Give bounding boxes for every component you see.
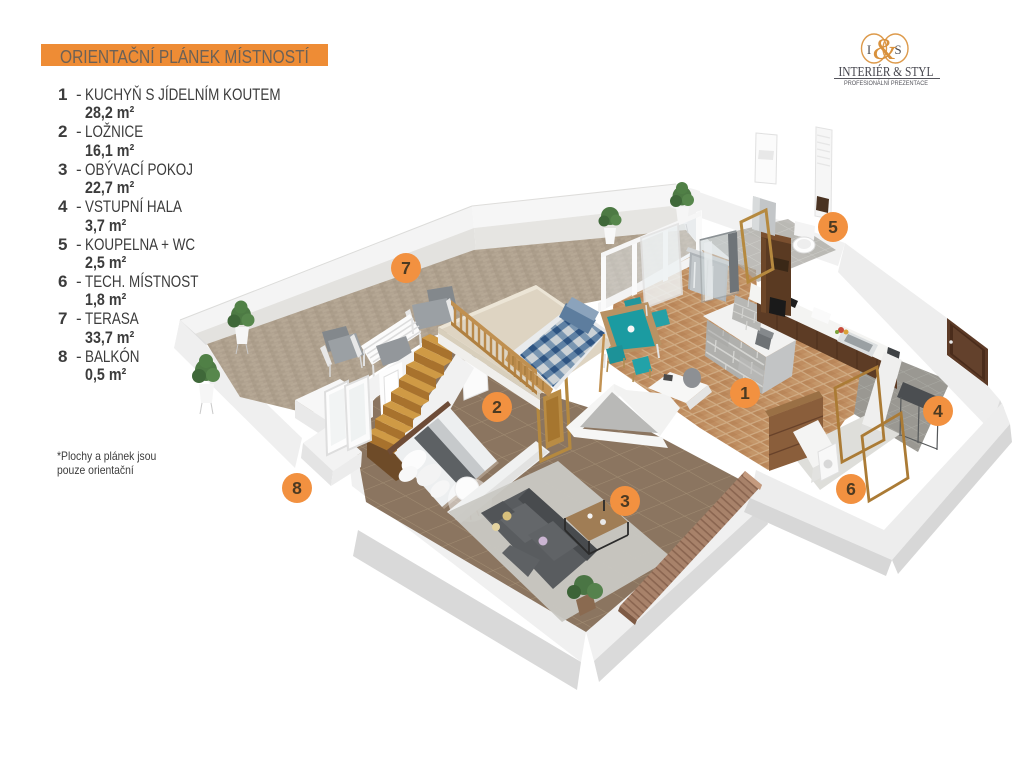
svg-text:5: 5 xyxy=(828,217,838,237)
svg-text:6: 6 xyxy=(846,479,856,499)
svg-text:2: 2 xyxy=(492,397,502,417)
svg-text:7: 7 xyxy=(401,258,411,278)
svg-text:4: 4 xyxy=(933,401,943,421)
svg-text:8: 8 xyxy=(292,478,302,498)
svg-text:1: 1 xyxy=(740,383,750,403)
svg-text:3: 3 xyxy=(620,491,630,511)
